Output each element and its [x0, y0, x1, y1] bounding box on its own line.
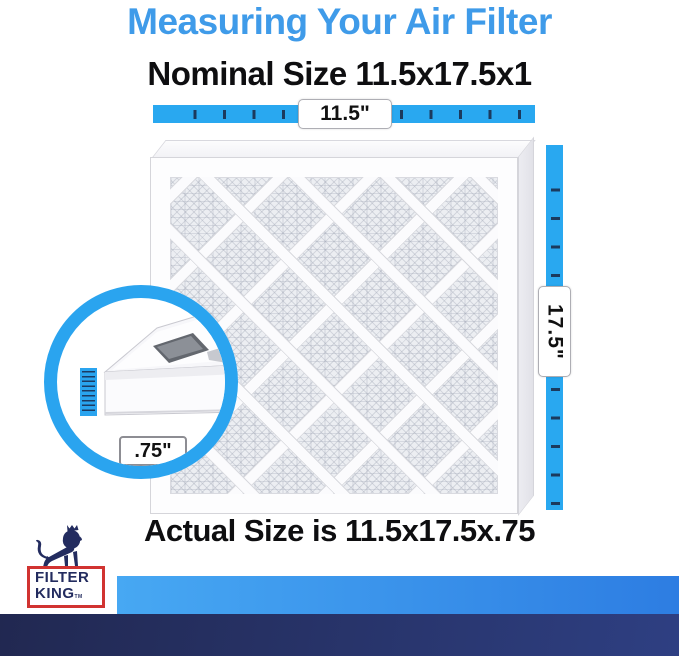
brand-name-line1: FILTER: [35, 570, 102, 586]
depth-value: .75": [134, 440, 171, 463]
depth-dimension-label: .75": [119, 436, 187, 466]
brand-name-box: FILTER KINGTM: [27, 566, 105, 608]
nominal-size-heading: Nominal Size 11.5x17.5x1: [0, 55, 679, 93]
width-value: 11.5": [320, 102, 370, 126]
footer-navy-bar: [0, 614, 679, 656]
trademark-mark: TM: [75, 594, 83, 600]
brand-name-line2: KINGTM: [35, 586, 102, 605]
filter-king-logo: FILTER KINGTM: [27, 524, 117, 614]
product-infographic: Measuring Your Air Filter Nominal Size 1…: [0, 0, 679, 656]
depth-mini-ruler: [80, 368, 97, 416]
lion-crown-icon: [33, 524, 95, 568]
width-dimension-label: 11.5": [298, 99, 392, 129]
page-title: Measuring Your Air Filter: [0, 1, 679, 43]
depth-zoom-callout: .75": [44, 285, 238, 479]
filter-right-side-face: [518, 137, 534, 516]
height-value: 17.5": [543, 304, 567, 360]
height-dimension-label: 17.5": [538, 286, 571, 377]
footer-light-blue-bar: [117, 576, 679, 615]
